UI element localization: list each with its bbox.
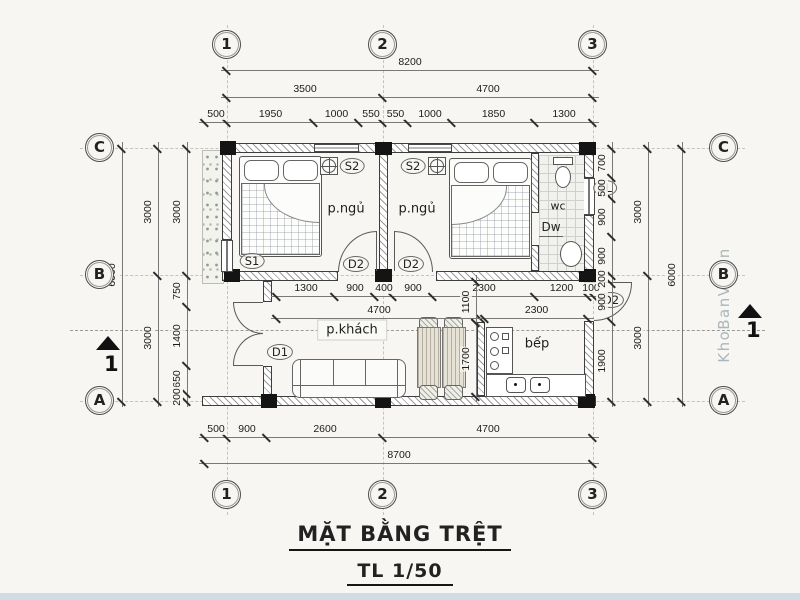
mark-s2-left: S2 (340, 158, 365, 174)
grid-bubble-label: C (718, 138, 729, 156)
section-arrow-right (738, 304, 762, 318)
dim-value: 1100 (460, 289, 472, 314)
grid-bubble-label: A (94, 391, 106, 409)
wall-B-right (436, 271, 594, 281)
grid-bubble-row-C-right: C (709, 133, 738, 162)
grid-bubble-col-3-top: 3 (578, 30, 607, 59)
dim-chain-line (199, 122, 599, 123)
mark-d2-left: D2 (343, 256, 369, 272)
dim-value: 1900 (596, 348, 608, 373)
dim-value: 1950 (258, 108, 283, 120)
dim-value: 900 (596, 246, 608, 266)
wall-left-upper (222, 153, 232, 240)
watermark: KhoBanVe.vn (715, 225, 735, 385)
dim-value: 500 (596, 178, 608, 198)
dim-value: 1000 (324, 108, 349, 120)
dim-chain-line (221, 97, 599, 98)
floor-plan-canvas: p.ngủ p.ngủ p.khách bếp wc S1 S2 S2 D2 D… (0, 0, 800, 600)
stove-burner-3 (490, 361, 499, 370)
bed-1-mattress (241, 183, 320, 255)
footer-strip (0, 593, 800, 600)
grid-bubble-label: A (718, 391, 730, 409)
dim-value: 3500 (292, 83, 317, 95)
wall-wc-west-upper (531, 153, 539, 213)
grid-bubble-label: 2 (377, 485, 387, 503)
sofa-arm-right (397, 360, 398, 397)
dining-chair-3 (419, 385, 438, 400)
grid-bubble-row-B-left: B (85, 260, 114, 289)
section-arrow-left (96, 336, 120, 350)
mark-d2-right: D2 (398, 256, 424, 272)
dim-value: 400 (374, 282, 394, 294)
grid-bubble-label: 3 (587, 485, 597, 503)
dim-chain-line (199, 463, 599, 464)
grid-bubble-col-3-bottom: 3 (578, 480, 607, 509)
drawing-scale: TL 1/50 (0, 560, 800, 586)
dim-value: 900 (345, 282, 365, 294)
ceiling-fan-icon-bedroom2 (428, 157, 446, 175)
dim-chain-line (271, 318, 487, 319)
mark-d1: D1 (267, 344, 293, 360)
title-text: MẶT BẰNG TRỆT (289, 522, 510, 551)
sink-drain-2 (538, 383, 541, 386)
stove-knob-1 (502, 333, 509, 340)
toilet-bowl (555, 166, 571, 188)
bed-1-blanket-fold (264, 183, 320, 223)
wash-basin (560, 241, 582, 267)
grid-bubble-col-1-bottom: 1 (212, 480, 241, 509)
bed-2-pillow-right (493, 162, 528, 183)
toilet-tank (553, 157, 573, 165)
dim-value: 1300 (293, 282, 318, 294)
dim-value: 1400 (171, 323, 183, 348)
column-1C (220, 141, 236, 155)
column-2B (375, 269, 392, 282)
stove-burner-2 (490, 347, 499, 356)
room-label-bedroom2: p.ngủ (398, 202, 435, 217)
column-3C (579, 142, 596, 155)
grid-bubble-row-A-left: A (85, 386, 114, 415)
mark-s2-right: S2 (401, 158, 426, 174)
grid-bubble-label: B (718, 265, 729, 283)
sofa-cushion-div2 (365, 360, 366, 385)
wall-kitchen-west (477, 322, 485, 396)
wall-wc-west-lower (531, 245, 539, 271)
bed-1-pillow-right (283, 160, 318, 181)
window-s2-bedroom1 (314, 144, 359, 152)
dim-value: 3000 (632, 325, 644, 350)
bed-2-mattress (451, 185, 530, 257)
dim-value: 8700 (386, 449, 411, 461)
section-number-left: 1 (104, 352, 119, 376)
dining-chair-4 (444, 385, 463, 400)
dim-value: 700 (596, 153, 608, 173)
dim-value: 3000 (142, 199, 154, 224)
wc-partition (539, 236, 563, 237)
ceiling-fan-icon-bedroom1 (320, 157, 338, 175)
dim-value: 4700 (475, 423, 500, 435)
sofa-arm-left (300, 360, 301, 397)
dim-value: 4700 (366, 304, 391, 316)
dim-value: 1700 (460, 346, 472, 371)
stove-burner-1 (490, 332, 499, 341)
grid-bubble-row-C-left: C (85, 133, 114, 162)
window-s2-bedroom2 (408, 144, 452, 152)
grid-bubble-row-A-right: A (709, 386, 738, 415)
dim-value: 1850 (481, 108, 506, 120)
grid-bubble-col-1-top: 1 (212, 30, 241, 59)
drawing-title: MẶT BẰNG TRỆT (0, 522, 800, 551)
grid-bubble-label: 1 (221, 485, 231, 503)
window-s1 (221, 240, 233, 272)
grid-bubble-label: 2 (377, 35, 387, 53)
dim-chain-line (682, 142, 683, 407)
bed-2-pillow-left (454, 162, 489, 183)
room-label-bedroom1: p.ngủ (327, 202, 364, 217)
grid-bubble-label: 3 (587, 35, 597, 53)
dim-value: 550 (361, 108, 381, 120)
dim-value: 500 (206, 108, 226, 120)
sofa-back-line (293, 385, 405, 386)
column-2C (375, 142, 392, 155)
dim-chain-line (476, 316, 477, 402)
dim-value: 550 (386, 108, 406, 120)
dim-value: 200 (596, 269, 608, 289)
wall-living-west-upper (263, 281, 272, 302)
room-label-kitchen: bếp (525, 337, 550, 352)
dim-value: 650 (171, 369, 183, 389)
dim-value: 2600 (312, 423, 337, 435)
wall-right-1 (584, 153, 594, 178)
sofa (292, 359, 406, 398)
room-label-living: p.khách (317, 320, 387, 341)
dim-value: 500 (206, 423, 226, 435)
stove-knob-2 (502, 347, 509, 354)
grid-bubble-label: B (94, 265, 105, 283)
section-number-right: 1 (746, 318, 761, 342)
dim-value: 6000 (666, 262, 678, 287)
grid-bubble-col-2-top: 2 (368, 30, 397, 59)
door-d1-bottom-leaf (233, 365, 263, 366)
dim-value: 3000 (632, 199, 644, 224)
dim-value: 900 (596, 292, 608, 312)
dim-value: 900 (596, 207, 608, 227)
dim-value: 8200 (397, 56, 422, 68)
grid-bubble-col-2-bottom: 2 (368, 480, 397, 509)
door-d1-bottom-swing (233, 333, 263, 365)
dim-chain-line (479, 318, 594, 319)
grid-bubble-row-B-right: B (709, 260, 738, 289)
dim-chain-line (271, 296, 600, 297)
dim-value: 750 (171, 281, 183, 301)
dim-value: 1200 (549, 282, 574, 294)
grid-bubble-label: C (94, 138, 105, 156)
scale-text: TL 1/50 (347, 560, 452, 586)
dim-chain-line (122, 142, 123, 407)
dining-table-left (417, 327, 441, 388)
room-label-wc: wc (550, 200, 565, 213)
dim-value: 3000 (171, 199, 183, 224)
dim-value: 3000 (142, 325, 154, 350)
dim-chain-line (221, 70, 599, 71)
dim-value: 1000 (417, 108, 442, 120)
dim-value: 900 (403, 282, 423, 294)
bed-1-pillow-left (244, 160, 279, 181)
dim-value: 900 (237, 423, 257, 435)
grid-bubble-label: 1 (221, 35, 231, 53)
wall-living-west-lower (263, 366, 272, 396)
sofa-cushion-div1 (333, 360, 334, 385)
dim-value: 2300 (524, 304, 549, 316)
mark-s1: S1 (240, 253, 265, 269)
dim-chain-line (199, 437, 599, 438)
wall-grid2 (379, 153, 388, 271)
window-sl (583, 178, 595, 215)
column-porch-A (261, 394, 277, 408)
bed-2-blanket-fold (451, 185, 507, 225)
dim-value: 1300 (551, 108, 576, 120)
dim-value: 200 (171, 387, 183, 407)
dim-value: 4700 (475, 83, 500, 95)
sink-drain-1 (514, 383, 517, 386)
mark-dw: Dw (541, 220, 560, 234)
